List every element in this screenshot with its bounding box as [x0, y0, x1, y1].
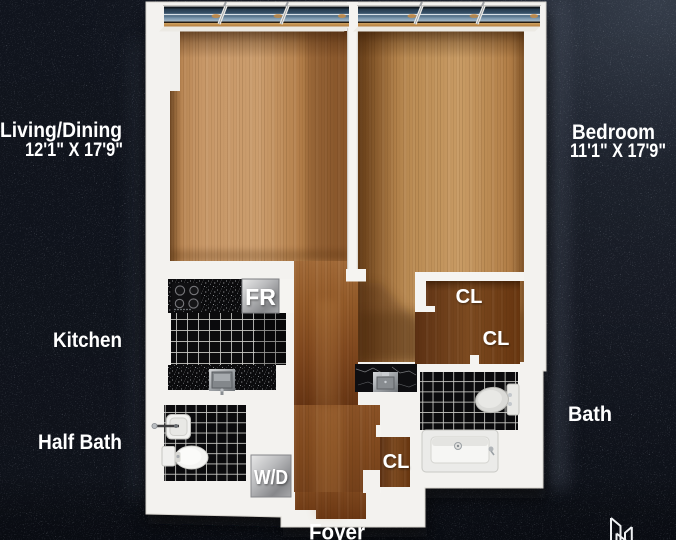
svg-text:Bath: Bath: [568, 403, 612, 426]
svg-text:CL: CL: [483, 328, 510, 350]
svg-text:FR: FR: [245, 284, 276, 310]
svg-text:W/D: W/D: [254, 467, 288, 489]
svg-text:12'1" X 17'9": 12'1" X 17'9": [25, 139, 123, 161]
svg-text:11'1" X 17'9": 11'1" X 17'9": [570, 140, 666, 162]
svg-text:Half Bath: Half Bath: [38, 431, 122, 454]
svg-text:Kitchen: Kitchen: [53, 329, 122, 352]
svg-text:Foyer: Foyer: [309, 520, 365, 540]
svg-text:CL: CL: [383, 451, 410, 473]
svg-text:CL: CL: [456, 286, 483, 308]
